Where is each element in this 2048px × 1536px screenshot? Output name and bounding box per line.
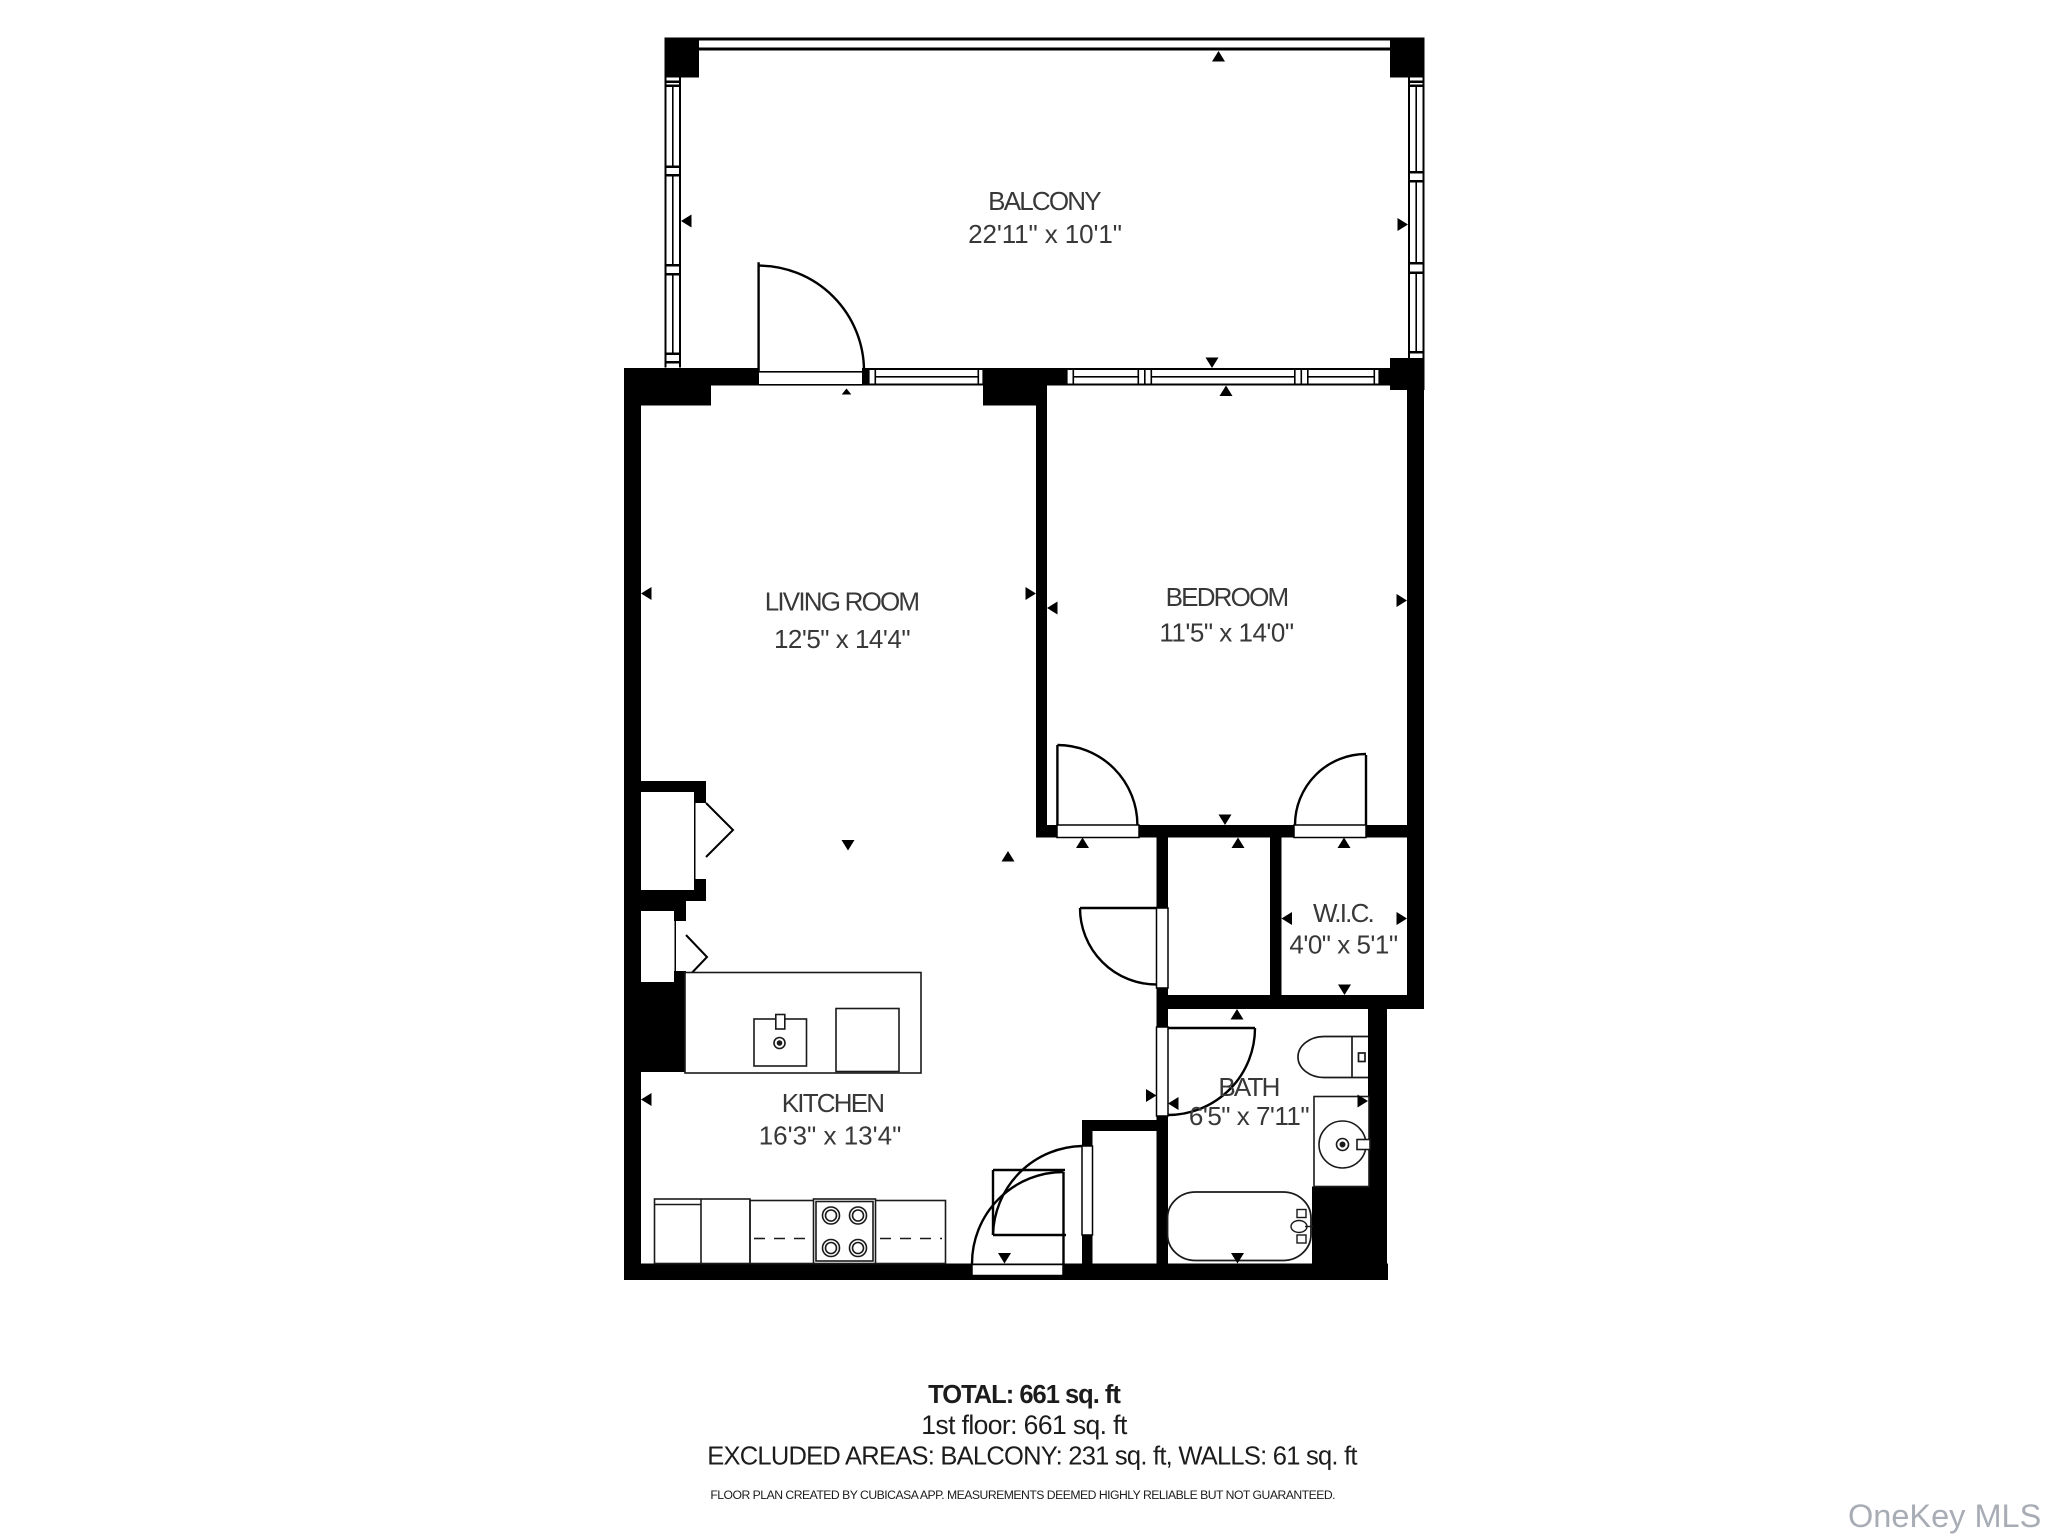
svg-text:EXCLUDED AREAS: BALCONY: 231 s: EXCLUDED AREAS: BALCONY: 231 sq. ft, WAL… <box>707 1443 1357 1471</box>
svg-text:4'0" x 5'1": 4'0" x 5'1" <box>1289 930 1397 960</box>
svg-text:12'5" x 14'4": 12'5" x 14'4" <box>774 624 910 654</box>
svg-text:22'11" x 10'1": 22'11" x 10'1" <box>968 219 1122 249</box>
svg-text:6'5" x 7'11": 6'5" x 7'11" <box>1189 1101 1309 1131</box>
svg-text:BEDROOM: BEDROOM <box>1166 582 1288 612</box>
svg-text:16'3" x 13'4": 16'3" x 13'4" <box>759 1121 902 1151</box>
svg-text:OneKey MLS: OneKey MLS <box>1848 1498 2041 1534</box>
svg-text:LIVING ROOM: LIVING ROOM <box>765 587 919 617</box>
svg-text:1st floor: 661 sq. ft: 1st floor: 661 sq. ft <box>921 1410 1128 1440</box>
svg-text:FLOOR PLAN CREATED BY CUBICASA: FLOOR PLAN CREATED BY CUBICASA APP. MEAS… <box>710 1488 1335 1502</box>
svg-text:11'5" x 14'0": 11'5" x 14'0" <box>1159 618 1293 648</box>
svg-text:BALCONY: BALCONY <box>988 186 1101 216</box>
svg-text:TOTAL: 661 sq. ft: TOTAL: 661 sq. ft <box>928 1381 1121 1409</box>
svg-text:KITCHEN: KITCHEN <box>782 1088 884 1118</box>
svg-text:BATH: BATH <box>1218 1072 1278 1102</box>
svg-text:W.I.C.: W.I.C. <box>1313 898 1373 928</box>
